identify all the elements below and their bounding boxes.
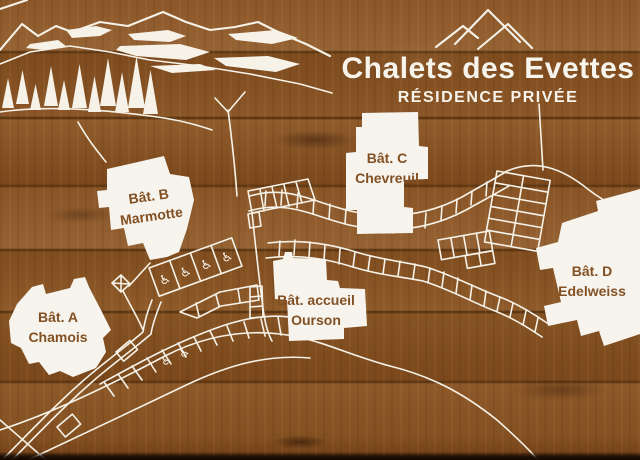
kite-marker-icon xyxy=(112,275,130,292)
building-accueil-subname: Ourson xyxy=(277,310,355,330)
wheelchair-icon: ♿ xyxy=(158,352,174,369)
wheelchair-icon: ♿ xyxy=(178,264,194,282)
building-c-name: Bât. C xyxy=(355,148,419,168)
sign-header: Chalets des Evettes RÉSIDENCE PRIVÉE xyxy=(342,52,635,107)
photo-bottom-edge xyxy=(0,452,640,460)
building-label-accueil: Bât. accueil Ourson xyxy=(277,290,355,330)
wheelchair-icon: ♿ xyxy=(176,344,192,361)
building-d-subname: Edelweiss xyxy=(558,281,626,301)
wooden-resort-map-sign: ♿ ♿ ♿ ♿ ♿ ♿ xyxy=(0,0,640,460)
building-label-c: Bât. C Chevreuil xyxy=(355,148,419,188)
mountain-peaks-logo-icon xyxy=(436,10,532,49)
building-d-name: Bât. D xyxy=(558,261,626,281)
parking-grid-small xyxy=(438,231,495,273)
building-accueil-name: Bât. accueil xyxy=(277,290,355,310)
building-a-name: Bât. A xyxy=(28,307,87,327)
sign-subtitle: RÉSIDENCE PRIVÉE xyxy=(342,89,635,107)
snow-patches xyxy=(26,26,300,73)
wheelchair-icon: ♿ xyxy=(198,256,214,274)
parking-grid-d xyxy=(484,171,550,251)
building-label-a: Bât. A Chamois xyxy=(28,307,87,347)
sign-title: Chalets des Evettes xyxy=(342,52,635,86)
building-c-subname: Chevreuil xyxy=(355,168,419,188)
building-label-d: Bât. D Edelweiss xyxy=(558,261,626,301)
wheelchair-icon: ♿ xyxy=(219,249,235,267)
wheelchair-icon: ♿ xyxy=(157,271,173,289)
building-a-subname: Chamois xyxy=(28,327,87,347)
